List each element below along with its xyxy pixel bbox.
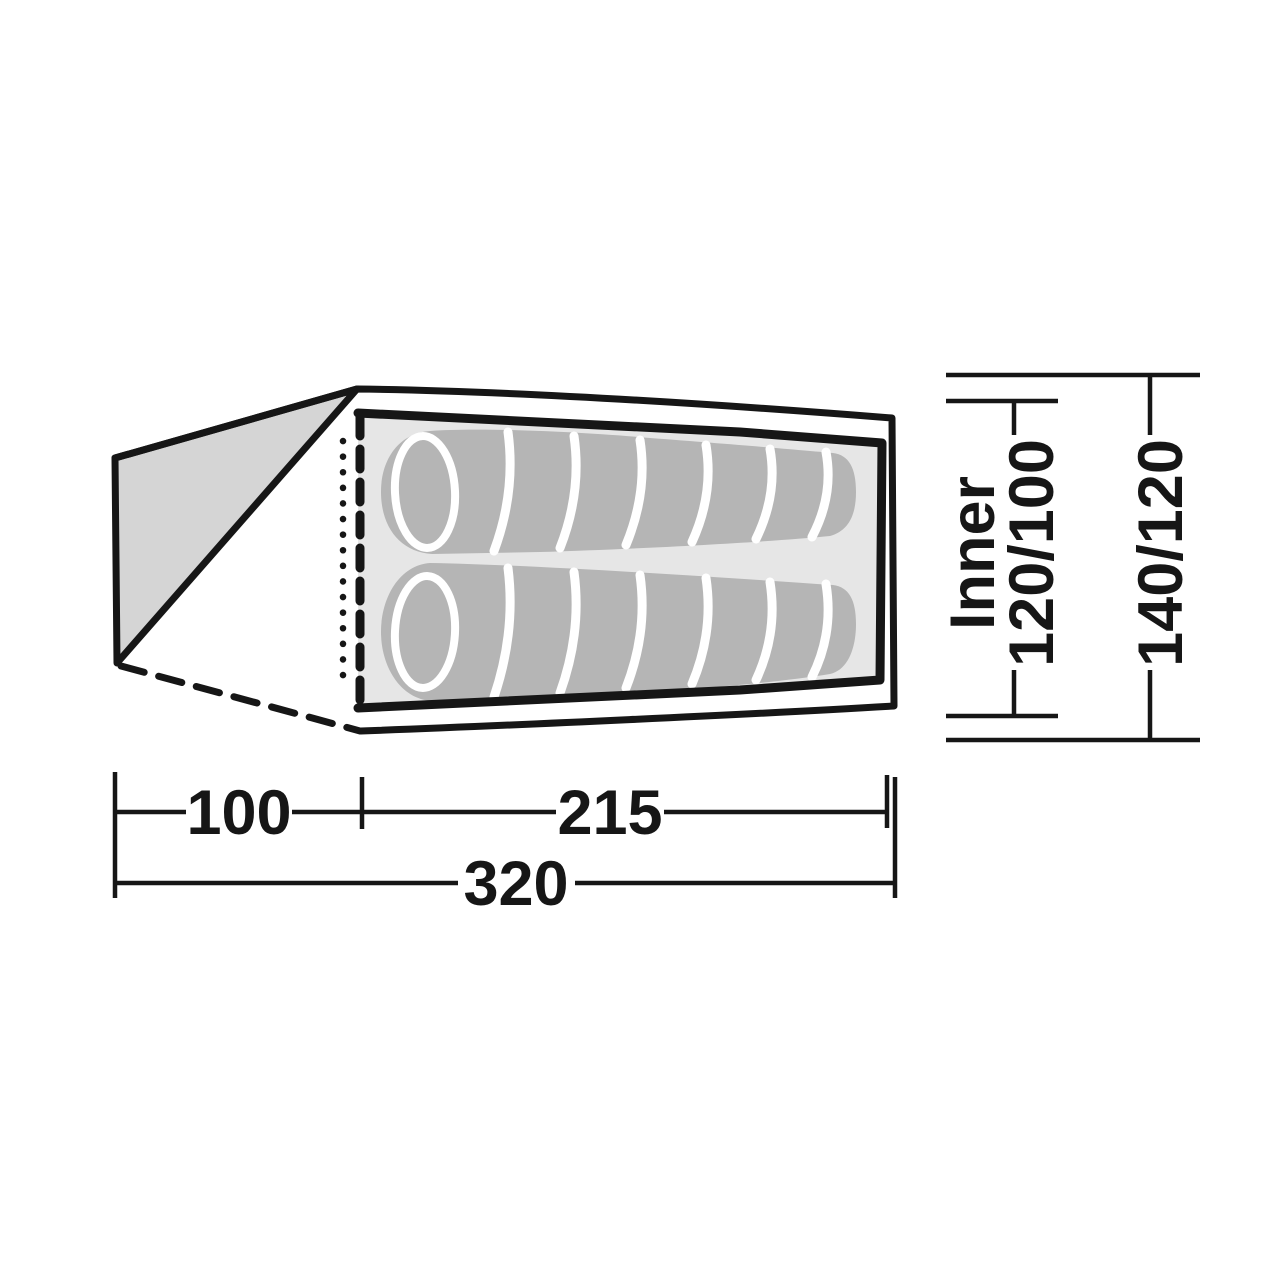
- label-inner-width: 120/100: [997, 439, 1067, 667]
- tent-dimension-diagram: 100 215 320 Inner 120/100 140/120: [0, 0, 1280, 1280]
- diagram-canvas: 100 215 320 Inner 120/100 140/120: [0, 0, 1280, 1280]
- label-inner-length: 215: [557, 778, 662, 848]
- vertical-dimensions: Inner 120/100 140/120: [938, 375, 1200, 740]
- vestibule-panel: [115, 389, 357, 663]
- horizontal-dimensions: 100 215 320: [115, 772, 895, 919]
- label-outer-width: 140/120: [1126, 439, 1196, 667]
- label-vestibule-depth: 100: [186, 778, 291, 848]
- tent-top-view: [115, 389, 894, 731]
- label-total-length: 320: [463, 849, 568, 919]
- vestibule-ground-dashed-line: [121, 666, 360, 731]
